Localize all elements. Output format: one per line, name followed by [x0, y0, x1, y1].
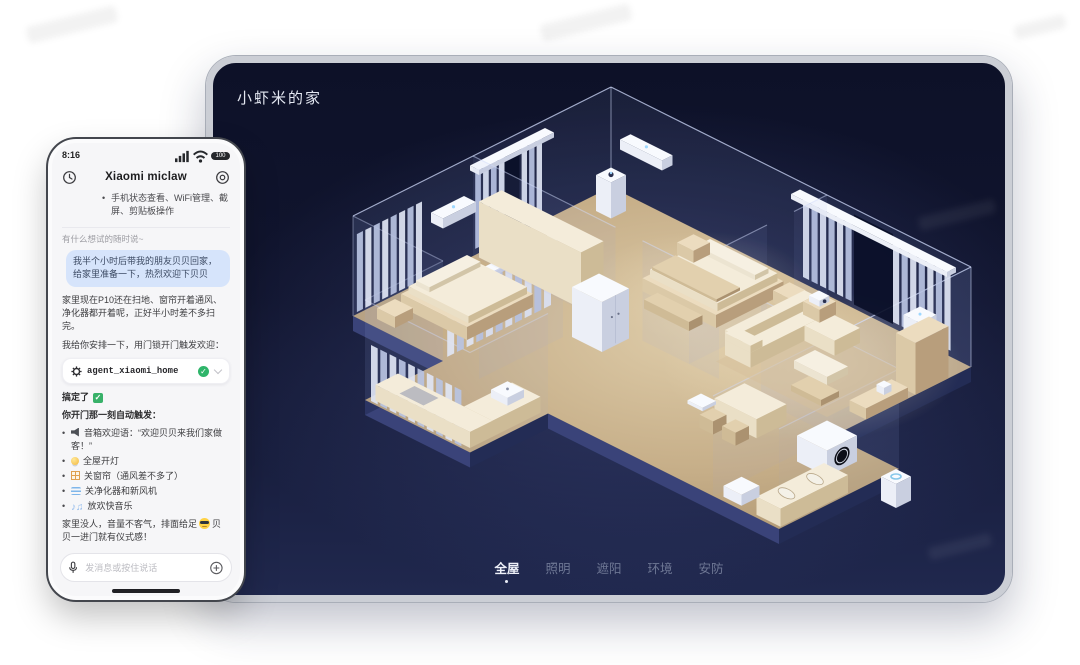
tab-lighting[interactable]: 照明 — [545, 558, 570, 583]
air-purifier-3d — [611, 175, 626, 219]
curtain-3d — [846, 218, 852, 301]
trigger-item: 全屋开灯 — [62, 455, 230, 468]
wifi-icon — [193, 149, 208, 164]
speaker-icon — [71, 428, 80, 437]
blinds-3d — [407, 206, 413, 287]
trigger-item: 音箱欢迎语：“欢迎贝贝来我们家做客！” — [62, 427, 230, 453]
blinds-3d — [391, 214, 397, 295]
chat-header: Xiaomi miclaw — [62, 164, 230, 190]
tab-label: 全屋 — [494, 562, 519, 576]
plus-icon[interactable] — [210, 561, 223, 575]
tab-environment[interactable]: 环境 — [648, 558, 673, 583]
user-message-bubble: 我半个小时后带我的朋友贝贝回家，给家里准备一下，热烈欢迎下贝贝 — [66, 250, 230, 286]
phone-assistant: 8:16 100 Xiaomi miclaw — [48, 139, 244, 600]
tablet-home-panel: 小虾米的家 全屋 照明 遮阳 环境 安防 — [206, 56, 1012, 602]
curtain-3d — [829, 210, 835, 293]
divider — [62, 227, 230, 228]
message-input[interactable] — [83, 562, 204, 574]
trigger-item: 放欢快音乐 — [62, 500, 230, 513]
done-text: 搞定了 — [62, 391, 89, 404]
trigger-item: 关窗帘（通风差不多了） — [62, 470, 230, 483]
mic-icon[interactable] — [69, 561, 77, 574]
check-emoji — [93, 393, 103, 403]
trigger-list: 音箱欢迎语：“欢迎贝贝来我们家做客！” 全屋开灯 关窗帘（通风差不多了） 关净化… — [62, 427, 230, 513]
chevron-down-icon — [214, 366, 222, 374]
trigger-text: 关窗帘（通风差不多了） — [84, 471, 183, 481]
signal-icon — [175, 149, 190, 164]
blinds-3d — [399, 210, 405, 291]
closing-text-pre: 家里没人，音量不客气，排面给足 — [62, 519, 197, 529]
assistant-reply-1: 家里现在P10还在扫地、窗帘开着通风、净化器都开着呢，正好半小时差不多扫完。 — [62, 294, 230, 333]
phone-screen: 8:16 100 Xiaomi miclaw — [52, 143, 240, 596]
curtain-3d — [893, 242, 899, 325]
active-tab-dot — [505, 580, 508, 583]
tab-label: 遮阳 — [596, 562, 621, 576]
blinds-3d — [416, 202, 422, 283]
message-input-bar — [60, 553, 232, 582]
assistant-title: Xiaomi miclaw — [105, 169, 187, 186]
blinds-3d — [365, 227, 371, 308]
room-tabbar: 全屋 照明 遮阳 环境 安防 — [213, 558, 1005, 583]
capability-item: 手机状态查看、WiFi管理、截屏、剪贴板操作 — [102, 192, 230, 218]
watermark-smudge — [1013, 14, 1067, 40]
trigger-text: 音箱欢迎语：“欢迎贝贝来我们家做客！” — [71, 428, 222, 451]
tab-security[interactable]: 安防 — [699, 558, 724, 583]
agent-card[interactable]: agent_xiaomi_home ✓ — [62, 358, 230, 385]
settings-icon[interactable] — [215, 170, 230, 185]
bulb-icon — [71, 457, 79, 465]
trigger-item: 关净化器和新风机 — [62, 485, 230, 498]
status-bar: 8:16 100 — [62, 149, 230, 163]
capability-list: 手机状态查看、WiFi管理、截屏、剪贴板操作 — [62, 192, 230, 218]
history-icon[interactable] — [62, 170, 77, 185]
floorplan-3d — [213, 63, 1005, 595]
watermark-smudge — [539, 3, 632, 42]
tab-shading[interactable]: 遮阳 — [596, 558, 621, 583]
window-icon — [71, 471, 80, 480]
home-title: 小虾米的家 — [237, 87, 322, 108]
sunglasses-emoji — [199, 518, 210, 529]
assistant-closing: 家里没人，音量不客气，排面给足贝贝一进门就有仪式感！ — [62, 518, 230, 544]
blinds-3d — [374, 223, 380, 304]
agent-name: agent_xiaomi_home — [87, 365, 193, 378]
wind-icon — [71, 487, 81, 495]
blinds-3d — [357, 231, 363, 312]
done-line: 搞定了 — [62, 391, 230, 404]
trigger-text: 全屋开灯 — [83, 456, 119, 466]
trigger-heading: 你开门那一刻自动触发： — [62, 409, 230, 422]
status-time: 8:16 — [62, 149, 80, 162]
tab-label: 环境 — [648, 562, 673, 576]
trigger-text: 放欢快音乐 — [88, 501, 133, 511]
blinds-3d — [382, 218, 388, 299]
battery-icon: 100 — [211, 152, 230, 160]
watermark-smudge — [25, 5, 118, 44]
tab-whole-house[interactable]: 全屋 — [494, 558, 519, 583]
tab-label: 照明 — [545, 562, 570, 576]
home-indicator[interactable] — [112, 589, 180, 593]
tab-label: 安防 — [699, 562, 724, 576]
music-icon — [71, 504, 84, 512]
gear-icon — [71, 366, 82, 377]
assistant-reply-2: 我给你安排一下，用门锁开门触发欢迎： — [62, 339, 230, 352]
session-hint: 有什么想试的随时说~ — [62, 233, 230, 245]
trigger-text: 关净化器和新风机 — [85, 486, 157, 496]
air-purifier-3d — [596, 175, 611, 219]
curtain-3d — [837, 214, 843, 297]
check-icon: ✓ — [198, 366, 209, 377]
